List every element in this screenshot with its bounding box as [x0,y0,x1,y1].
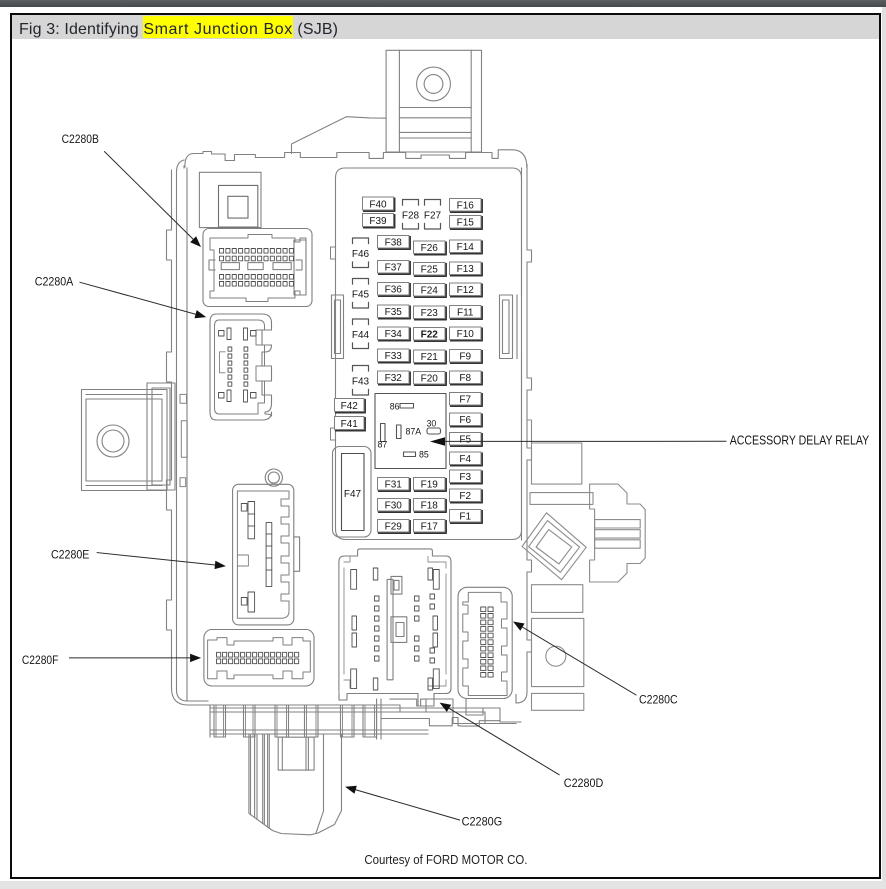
svg-text:F33: F33 [385,351,403,362]
svg-text:F39: F39 [369,216,387,227]
svg-text:F7: F7 [459,394,471,405]
svg-text:F18: F18 [421,500,439,511]
svg-text:F31: F31 [385,479,403,490]
svg-text:F15: F15 [457,217,475,228]
svg-text:F38: F38 [385,237,403,248]
svg-text:C2280E: C2280E [51,548,89,562]
svg-text:C2280C: C2280C [639,692,678,706]
svg-text:F20: F20 [421,373,439,384]
svg-text:F25: F25 [421,264,439,275]
svg-text:F8: F8 [459,373,471,384]
svg-text:F41: F41 [341,419,359,430]
svg-text:F6: F6 [459,415,471,426]
svg-text:F47: F47 [344,489,362,500]
svg-text:F28: F28 [402,211,420,222]
svg-text:F5: F5 [459,434,471,445]
svg-text:F27: F27 [424,211,442,222]
svg-text:F26: F26 [421,243,439,254]
svg-text:F9: F9 [459,351,471,362]
svg-text:C2280F: C2280F [22,653,59,667]
svg-text:F17: F17 [421,521,439,532]
svg-text:Courtesy of FORD MOTOR CO.: Courtesy of FORD MOTOR CO. [364,853,527,867]
svg-text:85: 85 [419,450,429,460]
svg-text:F36: F36 [385,284,403,295]
svg-text:F22: F22 [421,329,439,340]
svg-text:F30: F30 [385,500,403,511]
svg-text:F40: F40 [369,199,387,210]
svg-text:C2280A: C2280A [35,274,74,288]
svg-text:F12: F12 [457,285,475,296]
svg-text:F46: F46 [352,249,370,260]
svg-text:F43: F43 [352,377,370,388]
svg-text:F23: F23 [421,308,439,319]
svg-text:F19: F19 [421,479,439,490]
svg-text:ACCESSORY DELAY RELAY: ACCESSORY DELAY RELAY [730,434,870,448]
svg-text:C2280B: C2280B [62,132,99,146]
svg-text:F2: F2 [459,491,471,502]
svg-text:F42: F42 [341,401,359,412]
svg-text:F14: F14 [457,242,475,253]
svg-text:F16: F16 [457,200,475,211]
svg-text:C2280G: C2280G [462,815,503,829]
svg-text:87A: 87A [406,427,422,437]
svg-text:F35: F35 [385,307,403,318]
svg-text:F1: F1 [459,511,471,522]
svg-text:F44: F44 [352,330,370,341]
svg-text:F11: F11 [457,307,474,318]
svg-text:F13: F13 [457,264,475,275]
svg-text:F3: F3 [459,472,471,483]
svg-text:F10: F10 [457,329,475,340]
svg-text:F29: F29 [385,521,403,532]
svg-text:86: 86 [390,402,400,412]
svg-text:F21: F21 [421,352,439,363]
svg-text:87: 87 [378,440,388,450]
svg-text:F4: F4 [459,454,471,465]
svg-text:30: 30 [427,419,437,429]
svg-text:F24: F24 [421,285,439,296]
svg-text:F32: F32 [385,373,403,384]
svg-text:F37: F37 [385,262,403,273]
svg-text:F45: F45 [352,290,370,301]
svg-text:C2280D: C2280D [564,776,604,790]
svg-text:F34: F34 [385,329,403,340]
